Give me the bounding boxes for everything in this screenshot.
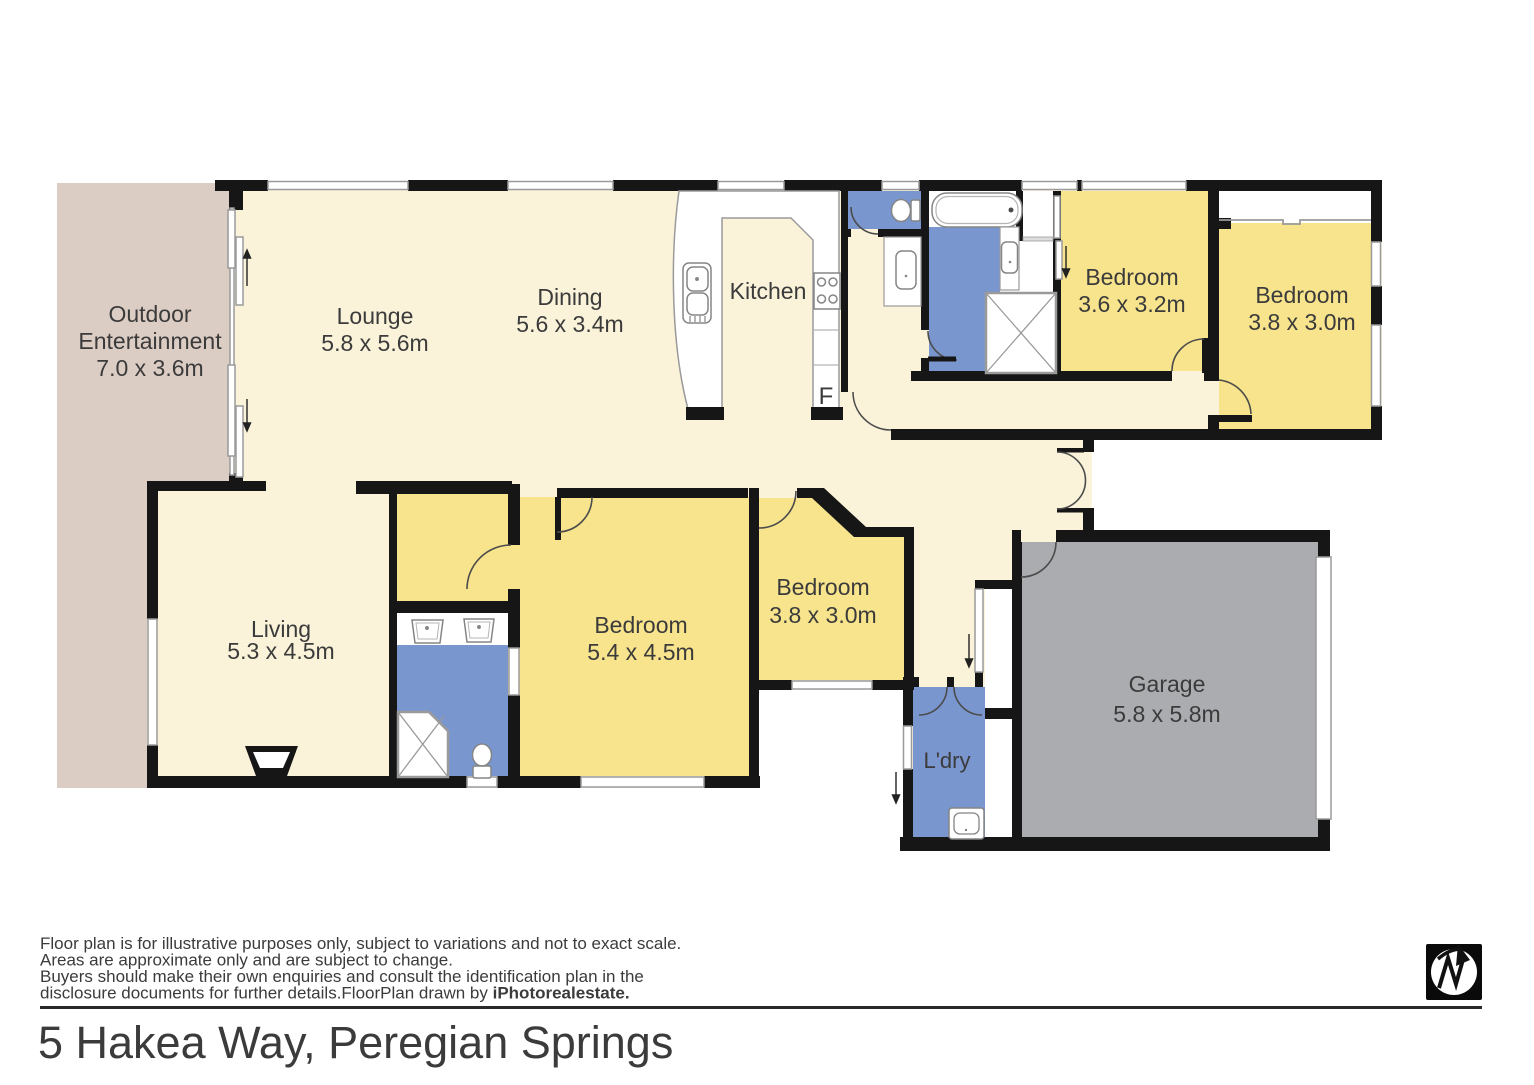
svg-text:5.6 x 3.4m: 5.6 x 3.4m	[516, 311, 623, 337]
svg-text:5.3 x 4.5m: 5.3 x 4.5m	[227, 638, 334, 664]
svg-text:3.8 x 3.0m: 3.8 x 3.0m	[769, 602, 876, 628]
svg-text:5.4 x 4.5m: 5.4 x 4.5m	[587, 639, 694, 665]
svg-text:Entertainment: Entertainment	[78, 328, 222, 354]
svg-text:Bedroom: Bedroom	[776, 574, 869, 600]
svg-text:F: F	[819, 383, 834, 410]
svg-text:7.0 x 3.6m: 7.0 x 3.6m	[96, 355, 203, 381]
svg-text:Dining: Dining	[537, 284, 602, 310]
svg-text:Garage: Garage	[1129, 671, 1206, 697]
svg-text:3.8 x 3.0m: 3.8 x 3.0m	[1248, 309, 1355, 335]
svg-text:5.8 x 5.8m: 5.8 x 5.8m	[1113, 701, 1220, 727]
svg-text:5 Hakea Way, Peregian Springs: 5 Hakea Way, Peregian Springs	[38, 1017, 673, 1068]
svg-text:3.6 x 3.2m: 3.6 x 3.2m	[1078, 291, 1185, 317]
svg-text:Bedroom: Bedroom	[1255, 282, 1348, 308]
svg-text:Lounge: Lounge	[337, 303, 414, 329]
svg-text:disclosure documents for furth: disclosure documents for further details…	[40, 984, 630, 1003]
svg-text:5.8 x 5.6m: 5.8 x 5.6m	[321, 330, 428, 356]
svg-text:L'dry: L'dry	[924, 748, 971, 773]
svg-text:Outdoor: Outdoor	[108, 301, 191, 327]
svg-text:Kitchen: Kitchen	[730, 278, 807, 304]
svg-text:Bedroom: Bedroom	[1085, 264, 1178, 290]
svg-text:Bedroom: Bedroom	[594, 612, 687, 638]
